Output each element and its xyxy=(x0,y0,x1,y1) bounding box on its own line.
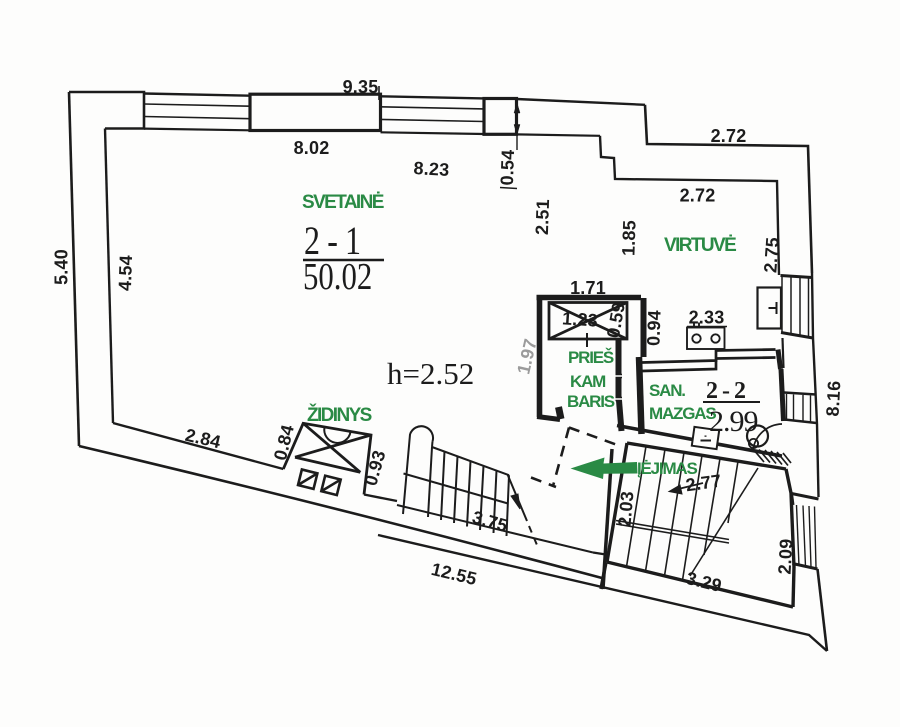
svg-text:SAN.: SAN. xyxy=(649,381,685,400)
svg-text:50.02: 50.02 xyxy=(303,255,372,298)
svg-text:h=2.52: h=2.52 xyxy=(387,356,474,391)
svg-text:0.54: 0.54 xyxy=(497,149,518,186)
svg-text:2.72: 2.72 xyxy=(711,126,747,146)
svg-text:1.71: 1.71 xyxy=(570,278,606,298)
svg-text:0.84: 0.84 xyxy=(270,423,298,463)
svg-text:1.23: 1.23 xyxy=(561,308,598,330)
svg-text:MAZGAS: MAZGAS xyxy=(649,404,716,423)
svg-text:12.55: 12.55 xyxy=(429,559,478,589)
svg-text:2.03: 2.03 xyxy=(614,490,637,527)
svg-text:2 - 2: 2 - 2 xyxy=(706,378,745,404)
svg-text:SVETAINĖ: SVETAINĖ xyxy=(302,192,384,213)
svg-text:8.23: 8.23 xyxy=(413,158,450,180)
svg-text:2.09: 2.09 xyxy=(775,538,797,575)
svg-text:ĮĖJIMAS: ĮĖJIMAS xyxy=(637,459,697,478)
svg-text:KAM: KAM xyxy=(570,372,606,391)
svg-text:2.75: 2.75 xyxy=(760,236,782,273)
svg-text:1.97: 1.97 xyxy=(513,337,541,376)
svg-text:8.02: 8.02 xyxy=(294,138,330,158)
svg-text:2.72: 2.72 xyxy=(680,186,716,206)
svg-text:1.85: 1.85 xyxy=(618,220,639,257)
svg-text:9.35: 9.35 xyxy=(343,77,379,97)
svg-text:4.54: 4.54 xyxy=(115,255,136,292)
svg-text:VIRTUVĖ: VIRTUVĖ xyxy=(664,235,736,256)
svg-text:2.51: 2.51 xyxy=(532,199,553,236)
svg-text:ŽIDINYS: ŽIDINYS xyxy=(307,404,372,426)
svg-text:5.40: 5.40 xyxy=(52,249,72,285)
svg-text:8.16: 8.16 xyxy=(823,380,845,417)
svg-text:0.59: 0.59 xyxy=(603,301,629,340)
svg-text:0.94: 0.94 xyxy=(643,310,664,347)
svg-text:0.93: 0.93 xyxy=(360,448,389,488)
svg-text:2.33: 2.33 xyxy=(689,308,725,328)
svg-text:2.84: 2.84 xyxy=(183,425,222,453)
svg-text:3.29: 3.29 xyxy=(684,568,724,596)
svg-text:BARIS: BARIS xyxy=(567,392,615,411)
svg-text:3.75: 3.75 xyxy=(470,507,510,536)
svg-text:PRIEŠ: PRIEŠ xyxy=(568,348,614,367)
svg-text:2.99: 2.99 xyxy=(709,405,758,438)
